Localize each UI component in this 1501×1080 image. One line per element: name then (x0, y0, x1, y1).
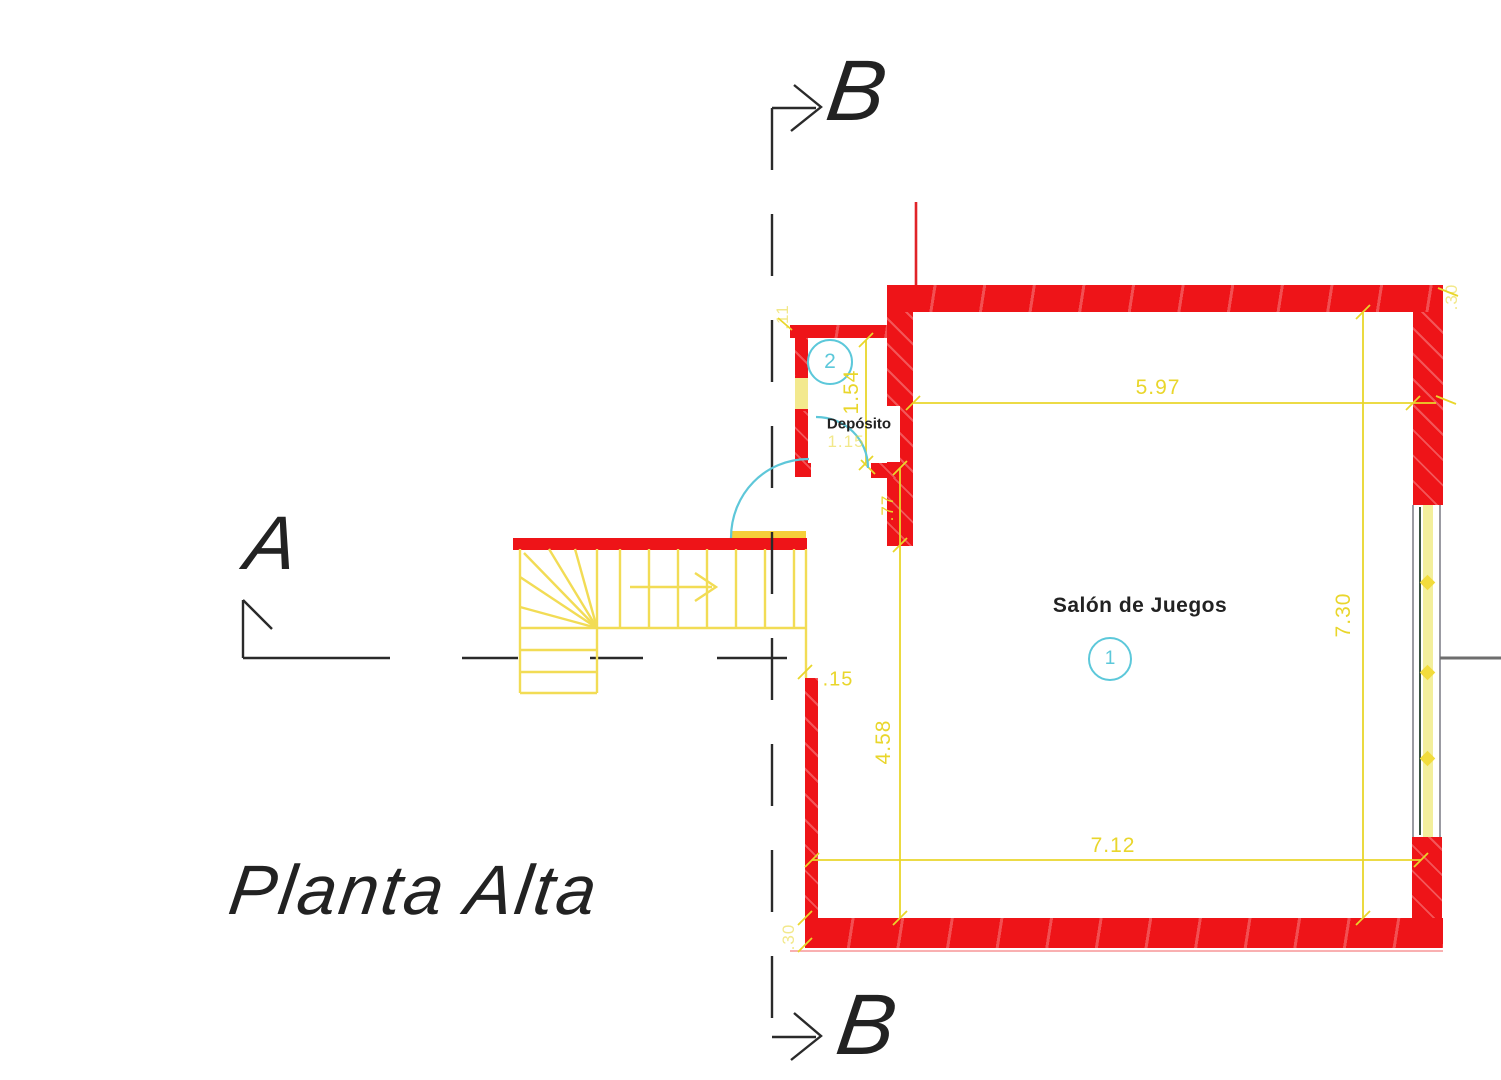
section-letter-b-top: B (822, 48, 891, 134)
text-layer: B B A Planta Alta Salón de Juegos 1 Depó… (0, 0, 1501, 1080)
floor-plan-canvas: B B A Planta Alta Salón de Juegos 1 Depó… (0, 0, 1501, 1080)
drawing-title: Planta Alta (225, 855, 604, 925)
dim-salon-width-top: 5.97 (1136, 376, 1181, 400)
dim-wall-segment: .77 (878, 495, 898, 522)
salon-room-number: 1 (1105, 648, 1116, 670)
dim-salon-height-right: 7.30 (1332, 593, 1356, 638)
dim-salon-width-bottom: 7.12 (1091, 834, 1136, 858)
dim-deposito-height: 1.54 (840, 370, 864, 415)
deposito-room-number: 2 (824, 350, 836, 374)
dim-salon-height-left: 4.58 (872, 720, 896, 765)
dim-bottom-left-wall-thickness: .30 (779, 924, 799, 951)
dim-top-right-wall-thickness: .30 (1442, 284, 1462, 311)
dim-deposito-wall-thickness: .11 (773, 304, 793, 329)
dim-deposito-door-width: 1.15 (827, 432, 864, 452)
salon-room-number-bubble: 1 (1088, 637, 1132, 681)
deposito-room-label: Depósito (827, 416, 891, 433)
section-letter-a: A (241, 506, 302, 582)
salon-room-label: Salón de Juegos (1053, 594, 1227, 618)
section-letter-b-bottom: B (832, 982, 901, 1068)
dim-thin-wall-thickness: .15 (823, 669, 854, 692)
